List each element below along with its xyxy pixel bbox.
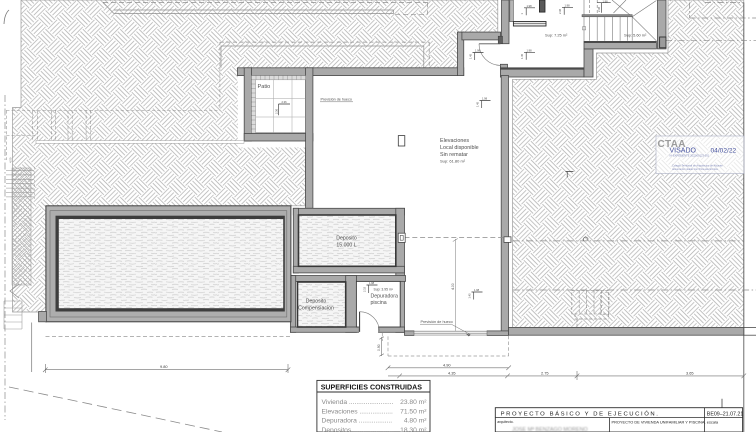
svg-text:PROYECTO BÁSICO Y DE EJECU: PROYECTO BÁSICO Y DE EJECUCIÓN. [501, 410, 660, 417]
svg-text:escala: escala [707, 420, 719, 425]
svg-text:Nº EXPEDIENTE 2022/00123-001: Nº EXPEDIENTE 2022/00123-001 [670, 154, 710, 158]
svg-text:2.36: 2.36 [282, 100, 288, 104]
svg-text:1.98: 1.98 [565, 3, 571, 7]
svg-text:Elevaciones ..................: Elevaciones .................. [322, 408, 394, 415]
svg-text:15.000 L: 15.000 L [336, 243, 356, 249]
svg-text:JOSE Mª BENZAGO MORENO: JOSE Mª BENZAGO MORENO [512, 427, 588, 432]
svg-text:2.75: 2.75 [541, 370, 549, 375]
svg-text:Previsión de hueco: Previsión de hueco [421, 320, 453, 324]
svg-text:71.50 m²: 71.50 m² [400, 408, 427, 415]
svg-text:Compensiacion: Compensiacion [298, 306, 334, 312]
svg-text:1.45: 1.45 [475, 101, 479, 107]
svg-text:Sup: 3.95 m²: Sup: 3.95 m² [374, 288, 394, 292]
svg-text:23.80 m²: 23.80 m² [400, 399, 427, 406]
svg-text:Deposito: Deposito [336, 236, 357, 242]
svg-text:arquitecto.: arquitecto. [497, 420, 513, 424]
svg-text:piscina: piscina [371, 300, 387, 306]
svg-text:Depuradora: Depuradora [371, 294, 399, 300]
svg-text:9.80: 9.80 [160, 364, 168, 369]
svg-text:Colegio Territorial de Arquite: Colegio Territorial de Arquitectos de Al… [672, 164, 723, 168]
svg-text:2.36: 2.36 [597, 6, 601, 12]
svg-text:Sup: 7.25 m²: Sup: 7.25 m² [545, 32, 568, 37]
svg-text:1.98: 1.98 [475, 49, 481, 53]
svg-text:1.98: 1.98 [369, 281, 375, 285]
svg-text:Deposito: Deposito [306, 299, 327, 305]
svg-text:4.90: 4.90 [443, 362, 451, 367]
svg-text:1.45: 1.45 [520, 53, 524, 59]
svg-text:1.45: 1.45 [467, 293, 471, 299]
svg-text:0.90: 0.90 [377, 344, 381, 351]
svg-text:1.98: 1.98 [527, 4, 533, 8]
svg-text:2.36: 2.36 [274, 108, 278, 114]
svg-text:Vivienda .....................: Vivienda ........................ [322, 399, 394, 406]
svg-text:04/02/22: 04/02/22 [711, 148, 737, 155]
svg-text:3.65: 3.65 [686, 370, 694, 375]
svg-text:Patio: Patio [258, 84, 271, 90]
svg-text:4.80 m²: 4.80 m² [404, 418, 427, 425]
svg-text:PROYECTO DE VIVIENDA UNIFAM: PROYECTO DE VIVIENDA UNIFAMILIAR Y PISCI… [612, 420, 706, 425]
svg-text:Depositos ....................: Depositos ...................... [322, 427, 395, 432]
svg-text:4.35: 4.35 [448, 370, 456, 375]
svg-text:1.98: 1.98 [474, 288, 480, 292]
svg-text:Local disponible: Local disponible [440, 145, 479, 151]
svg-text:Sup: 61.80 m²: Sup: 61.80 m² [440, 158, 466, 163]
svg-text:Previsión de hueco: Previsión de hueco [321, 98, 352, 102]
svg-text:BE09–21.07.21: BE09–21.07.21 [707, 411, 744, 417]
svg-text:4.00: 4.00 [451, 283, 455, 290]
svg-text:4.50: 4.50 [9, 157, 13, 163]
svg-text:1.98: 1.98 [603, 0, 609, 3]
svg-text:2.36: 2.36 [558, 8, 562, 14]
svg-text:18.30 m²: 18.30 m² [400, 427, 427, 432]
svg-text:documento visado con firma ele: documento visado con firma electronica [672, 167, 718, 171]
svg-text:Sup: 5.60 m²: Sup: 5.60 m² [624, 32, 647, 37]
svg-text:SUPERFICIES CONSTRUIDAS: SUPERFICIES CONSTRUIDAS [321, 383, 423, 391]
svg-text:VISADO: VISADO [670, 148, 697, 155]
svg-text:Depuradora ..................: Depuradora .................. [322, 418, 393, 425]
svg-text:1.98: 1.98 [527, 48, 533, 52]
svg-text:Elevaciones: Elevaciones [440, 138, 469, 144]
svg-text:2.32: 2.32 [362, 286, 366, 292]
svg-text:Sin rematar: Sin rematar [440, 152, 468, 158]
svg-text:1.45: 1.45 [468, 53, 472, 59]
svg-text:1.98: 1.98 [482, 97, 488, 101]
